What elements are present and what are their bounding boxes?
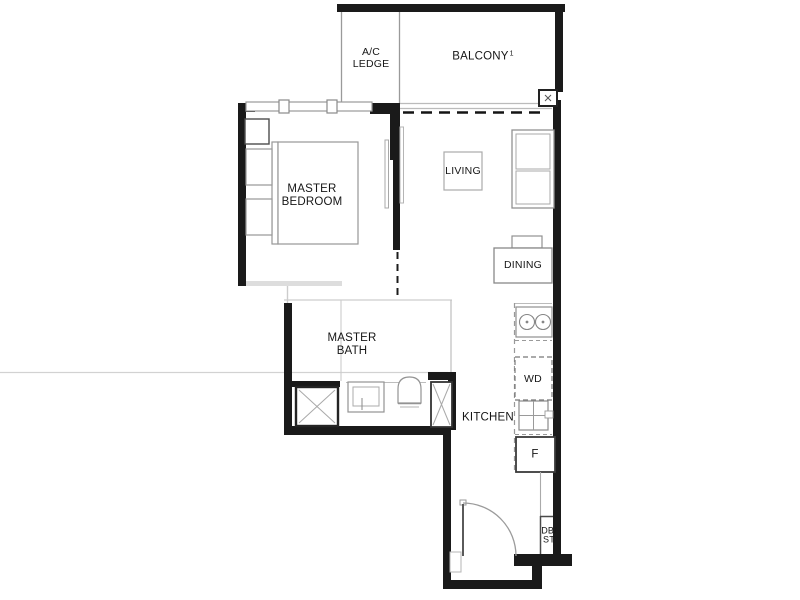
floor-plan-drawing bbox=[0, 0, 800, 600]
bedroom-furniture bbox=[245, 119, 358, 244]
nightstand-icon bbox=[246, 149, 272, 185]
pipe-box-icon bbox=[539, 90, 557, 106]
sofa-cushion-icon bbox=[516, 171, 550, 204]
floor-plan: A/C LEDGE BALCONY1 MASTER BEDROOM LIVING… bbox=[0, 0, 800, 600]
headboard-icon bbox=[272, 142, 278, 244]
label-fridge: F bbox=[531, 448, 538, 461]
bedroom-window bbox=[246, 100, 372, 113]
label-ac-ledge: A/C LEDGE bbox=[353, 46, 390, 70]
label-master-bedroom: MASTER BEDROOM bbox=[282, 183, 343, 209]
label-master-bath: MASTER BATH bbox=[327, 332, 376, 358]
toilet-icon bbox=[398, 377, 421, 403]
label-balcony: BALCONY1 bbox=[452, 50, 513, 63]
label-washer-dryer: WD bbox=[524, 373, 542, 385]
label-dining: DINING bbox=[504, 259, 542, 271]
door-swing-arc-icon bbox=[463, 503, 516, 556]
entrance-door bbox=[450, 500, 516, 572]
door-jamb-icon bbox=[450, 552, 461, 572]
wardrobe-icon bbox=[245, 119, 269, 144]
label-db-st: DB/ ST bbox=[541, 527, 557, 546]
faded-lines bbox=[0, 281, 452, 381]
basin-icon bbox=[353, 387, 379, 406]
nightstand-icon bbox=[246, 199, 272, 235]
sofa-cushion-icon bbox=[516, 134, 550, 169]
faucet-icon bbox=[545, 411, 553, 418]
dining-chair-icon bbox=[512, 236, 542, 248]
kitchen-fixtures bbox=[514, 303, 555, 516]
label-kitchen: KITCHEN bbox=[462, 411, 514, 424]
label-living: LIVING bbox=[445, 165, 481, 177]
